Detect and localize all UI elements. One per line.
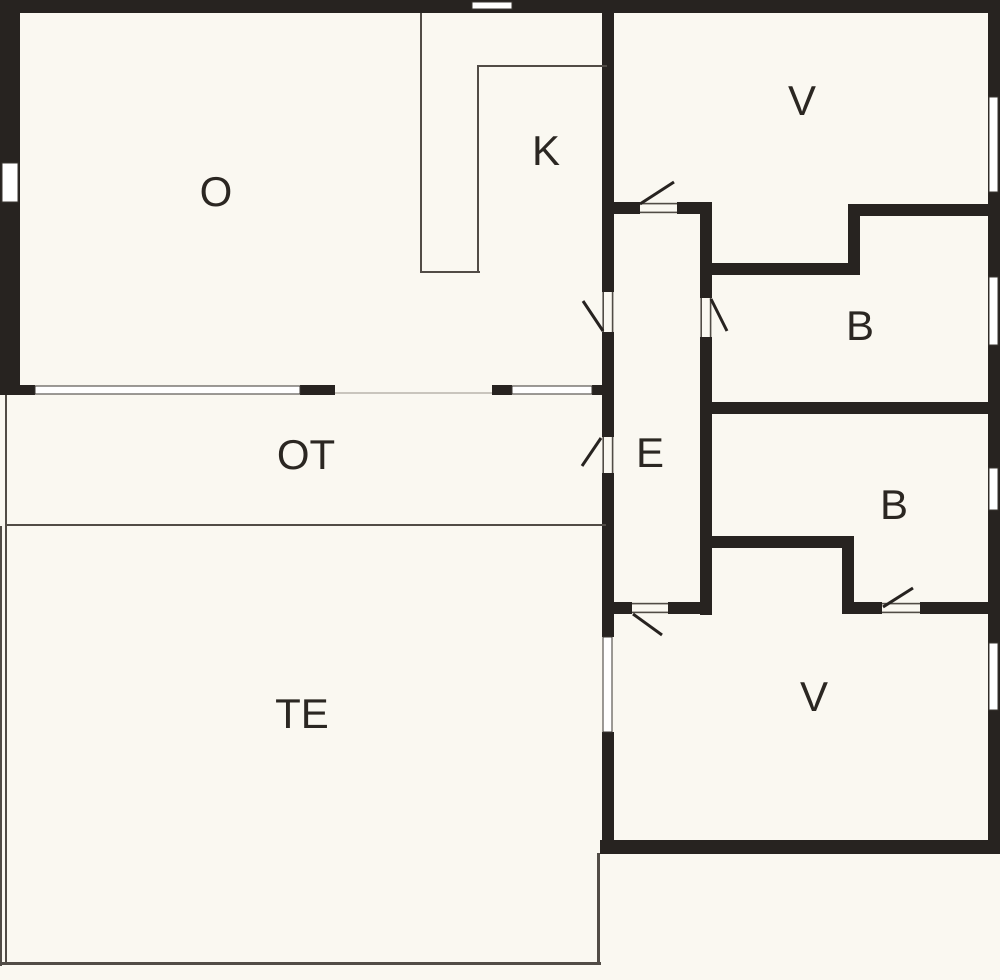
wall-central-seg4 [602,732,614,854]
door-swing-line [640,182,674,204]
door-jamb [640,203,677,205]
wall-entry-bottom-seg2 [668,602,712,614]
window-o-ot-short [512,386,592,394]
kitchen-counter-inner-vertical [477,67,479,273]
window-bedroom-ne-right [989,97,998,192]
door-jamb [602,437,604,473]
window-bedroom-se-right [989,643,998,710]
door-entry-bedroom-ne [640,182,677,213]
line-terrace-bottom [0,962,601,965]
wall-exterior-bottom-right-wing [600,840,1000,854]
wall-central-seg1 [602,13,614,292]
room-label-entry: E [636,429,664,476]
room-label-kitchen: K [532,127,560,174]
open-passage-threshold [335,392,492,394]
door-swing-line [711,299,727,331]
line-ot-terrace-left-inner [5,395,7,963]
kitchen-counter-inner-horizontal [477,65,607,67]
kitchen-counter-bottom-edge [420,271,480,273]
line-ot-terrace-divider [5,524,606,526]
room-label-living: O [200,168,233,215]
door-jamb [632,603,668,605]
line-terrace-right [597,853,600,965]
window-bath-upper-right [989,277,998,345]
wall-o-ot-seg2 [300,385,335,395]
room-label-bedroom-se: V [800,673,828,720]
wall-v-b-right [848,204,1000,216]
wall-entry-right-seg1 [700,202,712,298]
wall-entry-top-seg1 [606,202,640,214]
door-jamb [882,612,920,614]
window-terrace-bedroom [603,637,612,732]
wall-central-seg2 [602,332,614,437]
window-bath-lower-right [989,468,998,510]
door-jamb [602,292,604,332]
room-label-bath-lower: B [880,481,908,528]
door-jamb [700,298,702,337]
wall-entry-right-seg2 [700,337,712,615]
wall-notch-horizontal [702,263,860,275]
wall-bath-bottom-seg2 [920,602,1000,614]
floorplan-drawing: O K V B E OT B V TE [0,0,1000,980]
door-kitchen-entry [583,292,613,332]
door-ot-entry [582,437,613,473]
wall-exterior-left [0,13,20,395]
wall-lower-notch-horizontal [702,536,852,548]
room-label-passage: OT [277,431,335,478]
door-jamb [612,292,614,332]
door-jamb [640,212,677,214]
door-entry-bedroom-se [632,603,668,635]
windows [2,2,998,732]
wall-o-ot-seg4 [592,385,614,395]
floorplan-canvas: O K V B E OT B V TE [0,0,1000,980]
window-o-ot-long [35,386,300,394]
room-label-bedroom-ne: V [788,77,816,124]
wall-bath-bottom-seg1 [842,602,882,614]
kitchen-counter-left-edge [420,13,422,273]
door-bath-lower-bedroom-se [882,588,920,613]
line-terrace-left-outer [0,526,2,966]
wall-o-ot-seg1 [0,385,35,395]
door-swing-line [583,301,603,331]
window-living-left [2,163,18,202]
door-jamb [612,437,614,473]
door-swing-line [633,614,662,635]
door-swing-line [582,438,601,466]
wall-entry-bottom-seg1 [612,602,632,614]
door-jamb [632,612,668,614]
wall-o-ot-seg3 [492,385,512,395]
room-label-bath-upper: B [846,302,874,349]
room-label-terrace: TE [275,690,329,737]
wall-bath-divider [712,402,1000,414]
walls [0,0,1000,854]
door-jamb [710,298,712,337]
window-kitchen-top [472,2,512,9]
door-entry-bath-upper [700,298,727,337]
thin-lines [0,13,607,966]
